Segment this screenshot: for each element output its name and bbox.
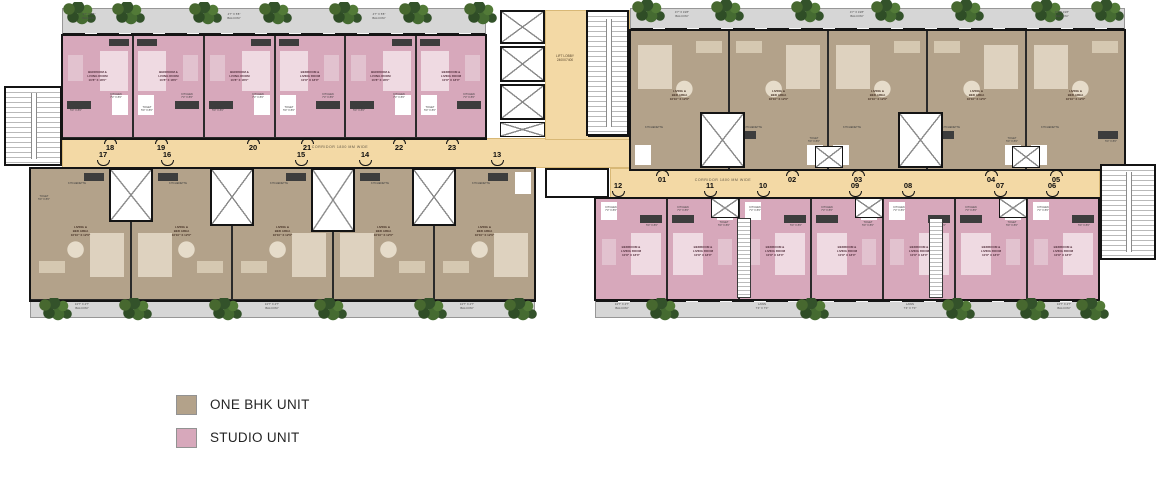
room-label: BEDROOM & LIVING ROOM 10'8" X 18'0" <box>884 245 954 257</box>
unit-door-20: 20 <box>243 138 263 153</box>
balcony-label: 13'7" X 4'7" BALCONY <box>250 303 294 310</box>
lift-shaft <box>700 112 745 168</box>
unit-number: 17 <box>99 151 107 160</box>
unit-door-14: 14 <box>355 151 375 166</box>
lift-shaft <box>109 168 153 222</box>
door-swing-icon <box>359 160 372 166</box>
service-shaft <box>711 198 739 218</box>
unit-number: 13 <box>493 151 501 160</box>
door-swing-icon <box>704 191 717 197</box>
unit-number: 20 <box>249 144 257 153</box>
kitchen-label: KITCHEN 7'3" X 8'6" <box>885 206 913 212</box>
studio-unit-06: BEDROOM & LIVING ROOM 10'8" X 18'0" KITC… <box>1027 198 1099 300</box>
unit-door-11: 11 <box>700 182 720 197</box>
kitchen-label: KITCHEN 7'3" X 8'6" <box>101 93 131 99</box>
unit-number: 12 <box>614 182 622 191</box>
toilet-label: TOILET 5'0" X 8'0" <box>1099 137 1123 143</box>
lift-shaft <box>412 168 456 226</box>
room-label: LIVING & BED AREA 16'10" X 12'6" <box>730 89 827 101</box>
lift-shaft <box>898 112 943 168</box>
unit-door-22: 22 <box>389 138 409 153</box>
room-label: LIVING & BED AREA 16'10" X 12'6" <box>631 89 728 101</box>
kitchen-label: KITCHEN 7'3" X 8'6" <box>243 93 273 99</box>
legend-row-one-bhk: ONE BHK UNIT <box>176 394 310 415</box>
kitchen-label: KITCHEN 7'3" X 8'6" <box>741 206 769 212</box>
door-swing-icon <box>161 160 174 166</box>
unit-number: 06 <box>1048 182 1056 191</box>
studio-unit-21: BEDROOM & LIVING ROOM 10'8" X 18'0" KITC… <box>275 35 345 138</box>
unit-number: 15 <box>297 151 305 160</box>
room-label: LIVING & BED AREA 16'10" X 12'6" <box>1027 89 1124 101</box>
kitchen-label: KITCHEN 7'3" X 8'6" <box>384 93 414 99</box>
unit-number: 14 <box>361 151 369 160</box>
toilet-label: TOILET 5'0" X 8'0" <box>277 106 301 112</box>
service-shaft <box>500 122 545 137</box>
kitchen-label: KITCHEN 7'3" X 8'6" <box>1029 206 1057 212</box>
unit-number: 08 <box>904 182 912 191</box>
lawn-label: LAWN 7'4" X 7'0" <box>740 303 784 310</box>
toilet-label: TOILET 5'0" X 8'0" <box>855 221 881 227</box>
balcony-label: 4'7" X 5'8" BALCONY <box>212 13 256 20</box>
utility-duct <box>737 218 751 298</box>
room-label: LIVING & BED AREA 16'10" X 12'6" <box>829 89 926 101</box>
staircase-lobby <box>586 10 629 136</box>
balcony-label: 13'7" X 4'7" BALCONY <box>600 303 644 310</box>
service-shaft <box>1012 146 1040 168</box>
kitchen-label: KITCHEN 7'3" X 8'6" <box>669 206 697 212</box>
lift-shaft <box>210 168 254 226</box>
lift-shaft <box>500 10 545 44</box>
kitchen-label: KITCHEN 7'3" X 8'6" <box>957 206 985 212</box>
balcony-label: 4'7" X 5'8" BALCONY <box>357 13 401 20</box>
unit-number: 09 <box>851 182 859 191</box>
unit-door-08: 08 <box>898 182 918 197</box>
unit-door-13: 13 <box>487 151 507 166</box>
room-label: BEDROOM & LIVING ROOM 10'8" X 18'0" <box>812 245 882 257</box>
lift-shaft <box>500 46 545 82</box>
corridor-left-label: CORRIDOR 1800 MM WIDE <box>275 145 405 149</box>
balcony-strip-left-top <box>62 8 486 35</box>
unit-number: 01 <box>658 176 666 185</box>
lawn-label: LAWN 7'4" X 7'0" <box>888 303 932 310</box>
room-label: BEDROOM & LIVING ROOM 10'8" X 18'0" <box>1028 245 1098 257</box>
unit-number: 16 <box>163 151 171 160</box>
unit-door-23: 23 <box>442 138 462 153</box>
door-swing-icon <box>902 191 915 197</box>
kitchenette-label: KITCHENETTE <box>358 182 402 185</box>
toilet-label: TOILET 5'0" X 8'0" <box>135 106 159 112</box>
unit-number: 22 <box>395 144 403 153</box>
unit-number: 23 <box>448 144 456 153</box>
service-room <box>545 168 609 198</box>
legend-row-studio: STUDIO UNIT <box>176 427 310 448</box>
toilet-label: TOILET 5'0" X 8'0" <box>783 221 809 227</box>
toilet-label: TOILET 5'0" X 8'0" <box>418 106 442 112</box>
legend-swatch-one-bhk <box>176 395 197 415</box>
room-label: BEDROOM & LIVING ROOM 10'8" X 18'0" <box>63 70 132 82</box>
kitchenette-label: KITCHENETTE <box>459 182 503 185</box>
utility-duct <box>929 218 943 298</box>
kitchenette-label: KITCHENETTE <box>257 182 301 185</box>
room-label: BEDROOM & LIVING ROOM 10'8" X 18'0" <box>956 245 1026 257</box>
kitchen-label: KITCHEN 7'3" X 8'6" <box>313 93 343 99</box>
studio-unit-08: BEDROOM & LIVING ROOM 10'8" X 18'0" KITC… <box>883 198 955 300</box>
unit-number: 02 <box>788 176 796 185</box>
kitchen-label: KITCHEN 7'3" X 8'6" <box>813 206 841 212</box>
kitchenette-label: KITCHENETTE <box>632 126 676 129</box>
room-label: BEDROOM & LIVING ROOM 10'8" X 18'0" <box>205 70 274 82</box>
room-label: BEDROOM & LIVING ROOM 10'8" X 18'0" <box>417 70 485 82</box>
toilet-label: TOILET 5'0" X 8'0" <box>32 195 56 201</box>
service-shaft <box>855 198 883 218</box>
staircase-right <box>1100 164 1156 260</box>
door-swing-icon <box>1046 191 1059 197</box>
toilet-label: TOILET 5'0" X 8'0" <box>711 221 737 227</box>
unit-door-12: 12 <box>608 182 628 197</box>
kitchenette-label: KITCHENETTE <box>1028 126 1072 129</box>
balcony-label: 13'7" X 4'7" BALCONY <box>60 303 104 310</box>
studio-unit-23: BEDROOM & LIVING ROOM 10'8" X 18'0" KITC… <box>416 35 486 138</box>
unit-number: 11 <box>706 182 714 191</box>
studio-unit-19: BEDROOM & LIVING ROOM 10'8" X 18'0" KITC… <box>133 35 204 138</box>
service-shaft <box>999 198 1027 218</box>
balcony-label: 4'7" X 19'8" BALCONY <box>1040 11 1084 18</box>
room-label: LIVING & BED AREA 16'10" X 12'6" <box>928 89 1025 101</box>
room-label: LIVING & BED AREA 16'10" X 12'6" <box>132 225 231 237</box>
legend-label-studio: STUDIO UNIT <box>210 430 300 445</box>
room-label: BEDROOM & LIVING ROOM 10'8" X 18'0" <box>346 70 415 82</box>
door-swing-icon <box>612 191 625 197</box>
door-swing-icon <box>994 191 1007 197</box>
unit-door-07: 07 <box>990 182 1010 197</box>
door-swing-icon <box>295 160 308 166</box>
studio-unit-12: BEDROOM & LIVING ROOM 10'8" X 18'0" KITC… <box>595 198 667 300</box>
balcony-label: 4'7" X 5'8" BALCONY <box>67 13 111 20</box>
legend: ONE BHK UNIT STUDIO UNIT <box>176 394 310 460</box>
balcony-strip-right-bottom <box>595 300 1100 318</box>
room-label: BEDROOM & LIVING ROOM 10'8" X 18'0" <box>134 70 203 82</box>
studio-unit-22: BEDROOM & LIVING ROOM 10'8" X 18'0" KITC… <box>345 35 416 138</box>
unit-door-06: 06 <box>1042 182 1062 197</box>
toilet-label: TOILET 5'0" X 8'0" <box>64 106 88 112</box>
one-bhk-unit-05: LIVING & BED AREA 16'10" X 12'6" KITCHEN… <box>1026 30 1125 170</box>
floor-plan: BEDROOM & LIVING ROOM 10'8" X 18'0" KITC… <box>0 0 1160 478</box>
toilet-label: TOILET 5'0" X 8'0" <box>639 221 665 227</box>
room-label: LIVING & BED AREA 16'10" X 12'6" <box>31 225 130 237</box>
kitchenette-label: KITCHENETTE <box>156 182 200 185</box>
kitchen-label: KITCHEN 7'3" X 8'6" <box>597 206 625 212</box>
unit-door-17: 17 <box>93 151 113 166</box>
kitchenette-label: KITCHENETTE <box>830 126 874 129</box>
lift-shaft <box>500 84 545 120</box>
unit-door-10: 10 <box>753 182 773 197</box>
balcony-label: 4'7" X 19'8" BALCONY <box>660 11 704 18</box>
door-swing-icon <box>757 191 770 197</box>
legend-label-one-bhk: ONE BHK UNIT <box>210 397 310 412</box>
lift-lobby-label: LIFT LOBBY 2400X7400 <box>544 54 586 63</box>
service-shaft <box>815 146 843 168</box>
toilet-label: TOILET 5'0" X 8'0" <box>999 221 1025 227</box>
unit-number: 10 <box>759 182 767 191</box>
toilet-label: TOILET 5'0" X 8'0" <box>1000 137 1024 143</box>
room-label: BEDROOM & LIVING ROOM 10'8" X 18'0" <box>276 70 344 82</box>
kitchen-label: KITCHEN 7'3" X 8'6" <box>454 93 484 99</box>
toilet-label: TOILET 5'0" X 8'0" <box>347 106 371 112</box>
toilet-label: TOILET 5'0" X 8'0" <box>802 137 826 143</box>
door-swing-icon <box>97 160 110 166</box>
unit-door-02: 02 <box>782 170 802 185</box>
toilet-label: TOILET 5'0" X 8'0" <box>1071 221 1097 227</box>
studio-unit-18: BEDROOM & LIVING ROOM 10'8" X 18'0" KITC… <box>62 35 133 138</box>
balcony-label: 13'7" X 4'7" BALCONY <box>445 303 489 310</box>
toilet-label: TOILET 5'0" X 8'0" <box>206 106 230 112</box>
unit-door-01: 01 <box>652 170 672 185</box>
door-swing-icon <box>491 160 504 166</box>
room-label: LIVING & BED AREA 16'10" X 12'6" <box>435 225 534 237</box>
lift-shaft <box>311 168 355 232</box>
staircase-left <box>4 86 62 166</box>
balcony-label: 13'7" X 4'7" BALCONY <box>1042 303 1086 310</box>
balcony-label: 4'7" X 19'8" BALCONY <box>835 11 879 18</box>
kitchen-label: KITCHEN 7'3" X 8'6" <box>172 93 202 99</box>
unit-number: 07 <box>996 182 1004 191</box>
legend-swatch-studio <box>176 428 197 448</box>
room-label: BEDROOM & LIVING ROOM 10'8" X 18'0" <box>596 245 666 257</box>
unit-door-09: 09 <box>845 182 865 197</box>
unit-door-15: 15 <box>291 151 311 166</box>
door-swing-icon <box>849 191 862 197</box>
room-label: BEDROOM & LIVING ROOM 10'8" X 18'0" <box>668 245 738 257</box>
studio-unit-20: BEDROOM & LIVING ROOM 10'8" X 18'0" KITC… <box>204 35 275 138</box>
corridor-left <box>62 138 630 168</box>
kitchenette-label: KITCHENETTE <box>55 182 99 185</box>
unit-door-16: 16 <box>157 151 177 166</box>
